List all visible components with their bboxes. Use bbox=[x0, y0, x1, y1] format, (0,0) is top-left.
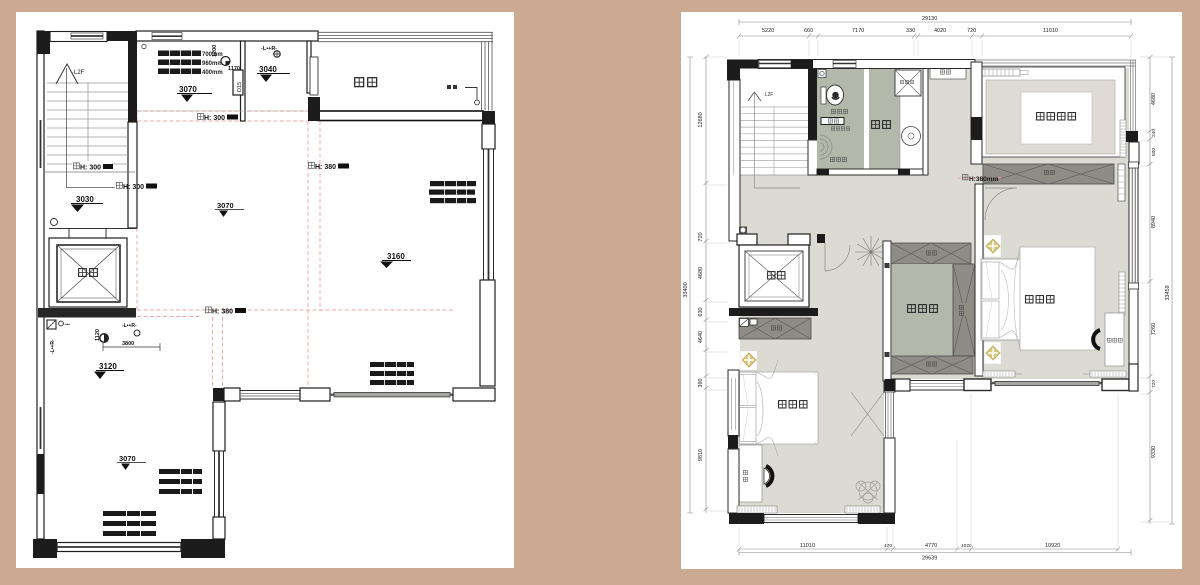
svg-text:4640: 4640 bbox=[698, 331, 704, 343]
svg-text:3160: 3160 bbox=[387, 252, 405, 261]
svg-text:1120: 1120 bbox=[95, 329, 101, 341]
svg-text:3030: 3030 bbox=[76, 195, 94, 204]
svg-text:1200: 1200 bbox=[212, 45, 218, 57]
svg-text:470: 470 bbox=[884, 543, 892, 549]
svg-text:720: 720 bbox=[967, 28, 976, 34]
svg-text:33459: 33459 bbox=[1165, 285, 1171, 300]
svg-text:1170: 1170 bbox=[228, 66, 240, 72]
svg-text:29130: 29130 bbox=[922, 16, 937, 22]
svg-text:·L2F: ·L2F bbox=[72, 70, 85, 76]
svg-text:10920: 10920 bbox=[1045, 543, 1060, 549]
svg-text:3800: 3800 bbox=[122, 341, 134, 347]
svg-text:29639: 29639 bbox=[922, 556, 937, 562]
svg-text:3120: 3120 bbox=[99, 362, 117, 371]
svg-text:400mm: 400mm bbox=[202, 70, 223, 76]
svg-text:3070: 3070 bbox=[119, 454, 136, 463]
svg-text:4020: 4020 bbox=[934, 28, 946, 34]
svg-text:720: 720 bbox=[1151, 380, 1157, 388]
svg-text:390: 390 bbox=[698, 378, 704, 387]
svg-text:8940: 8940 bbox=[1151, 216, 1157, 228]
svg-text:660: 660 bbox=[804, 28, 813, 34]
svg-text:-L•+R-: -L•+R- bbox=[122, 323, 137, 329]
svg-text:3070: 3070 bbox=[217, 201, 234, 210]
svg-text:H:380mm: H:380mm bbox=[969, 176, 998, 183]
svg-text:960mm: 960mm bbox=[202, 61, 223, 67]
svg-text:11010: 11010 bbox=[800, 543, 815, 549]
svg-text:12680: 12680 bbox=[698, 112, 704, 127]
svg-text:7260: 7260 bbox=[1151, 323, 1157, 335]
svg-text:H: 380: H: 380 bbox=[212, 309, 233, 316]
svg-text:4680: 4680 bbox=[1151, 93, 1157, 105]
svg-text:·L2F: ·L2F bbox=[763, 92, 773, 98]
svg-text:H: 300: H: 300 bbox=[80, 165, 101, 172]
svg-text:9330: 9330 bbox=[1151, 446, 1157, 458]
svg-text:720: 720 bbox=[698, 232, 704, 241]
svg-text:•••: ••• bbox=[65, 322, 70, 327]
svg-text:11010: 11010 bbox=[1043, 28, 1058, 34]
svg-text:9810: 9810 bbox=[698, 449, 704, 461]
svg-text:600: 600 bbox=[1151, 148, 1157, 156]
svg-text:H: 300: H: 300 bbox=[123, 184, 144, 191]
svg-text:7170: 7170 bbox=[852, 28, 864, 34]
svg-text:H: 380: H: 380 bbox=[315, 164, 336, 171]
svg-text:5220: 5220 bbox=[762, 28, 774, 34]
svg-text:330: 330 bbox=[906, 28, 915, 34]
svg-text:630: 630 bbox=[698, 307, 704, 316]
svg-text:4770: 4770 bbox=[925, 543, 937, 549]
svg-text:240: 240 bbox=[1151, 129, 1157, 137]
svg-text:4680: 4680 bbox=[698, 267, 704, 279]
svg-text:D15: D15 bbox=[237, 82, 243, 92]
svg-text:H: 300: H: 300 bbox=[204, 115, 225, 122]
svg-text:33400: 33400 bbox=[683, 282, 689, 297]
svg-text:1020: 1020 bbox=[961, 543, 972, 549]
svg-text:-L•+R-: -L•+R- bbox=[50, 339, 56, 354]
svg-text:3040: 3040 bbox=[259, 65, 277, 74]
svg-text:3070: 3070 bbox=[179, 85, 197, 94]
